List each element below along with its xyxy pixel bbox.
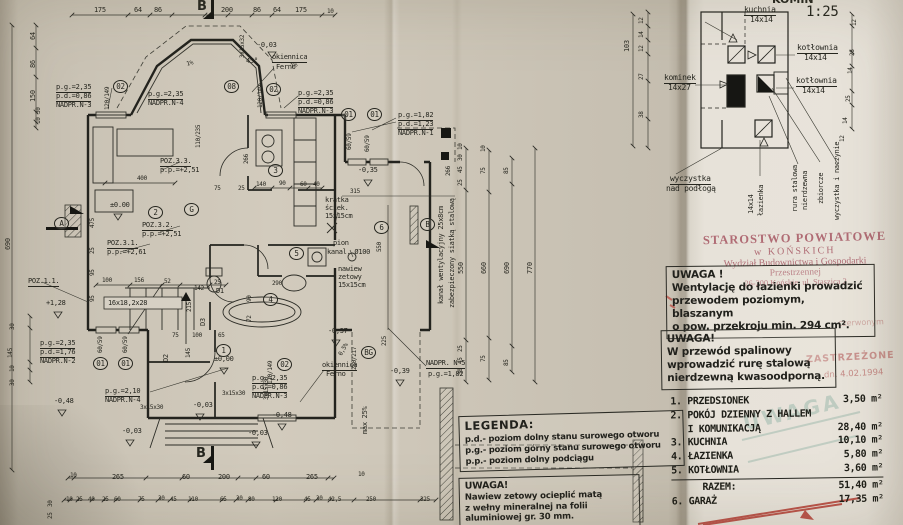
plan-annotation: 60 bbox=[262, 474, 270, 482]
plan-annotation: nierdzewna bbox=[802, 171, 810, 210]
plan-annotation: 85 bbox=[504, 359, 511, 366]
plan-annotation: p.p.=+2,51 bbox=[142, 231, 181, 239]
plan-annotation: 12 bbox=[639, 45, 646, 52]
plan-annotation: 40 bbox=[88, 497, 95, 504]
plan-annotation: 110/235 bbox=[196, 125, 203, 148]
plan-annotation: 80 bbox=[248, 497, 255, 504]
plan-annotation: D3 bbox=[200, 318, 208, 326]
plan-annotation: 60/59 bbox=[347, 133, 354, 150]
note-lines: W przewód spalinowywprowadzić rurę stalo… bbox=[667, 344, 830, 385]
plan-annotation: -0,03 bbox=[122, 428, 142, 436]
note-lines: Wentylację do łazienki prowadzićprzewode… bbox=[672, 280, 869, 334]
plan-annotation: 30 bbox=[48, 500, 55, 507]
plan-annotation: 85 bbox=[504, 167, 511, 174]
plan-annotation: 550 bbox=[458, 262, 466, 274]
scanned-floor-plan-sheet: KOMIN1:25kuchnia14x14kotłownia14x14komin… bbox=[0, 0, 903, 525]
plan-annotation: 156 bbox=[134, 278, 144, 285]
plan-ref-circle: B bbox=[420, 218, 435, 231]
plan-annotation: wyczystka i naczynie bbox=[834, 142, 842, 220]
plan-annotation: 25 bbox=[458, 345, 465, 352]
plan-annotation: 60/59 bbox=[123, 336, 130, 353]
plan-annotation: 75 bbox=[481, 355, 488, 362]
plan-annotation: p.p.=+2,61 bbox=[107, 249, 146, 257]
plan-annotation: 72 bbox=[247, 315, 254, 322]
plan-annotation: 266 bbox=[244, 154, 251, 164]
plan-annotation: pion bbox=[333, 240, 349, 248]
plan-annotation: D1 bbox=[216, 288, 224, 296]
plan-annotation: 142 bbox=[194, 286, 204, 293]
plan-annotation: 25 bbox=[214, 280, 221, 287]
plan-annotation: 30 bbox=[458, 154, 465, 161]
plan-annotation: 45° bbox=[246, 58, 258, 66]
note-insulation: UWAGA! Nawiew zetowy ocieplić matąz wełn… bbox=[458, 474, 640, 525]
room-area: 3,60 m² bbox=[844, 462, 884, 476]
plan-annotation: 30 bbox=[236, 496, 243, 503]
plan-annotation: -0,03 bbox=[257, 42, 277, 50]
plan-ref-circle: 3 bbox=[268, 164, 283, 177]
plan-annotation: 15x15cm bbox=[338, 282, 365, 290]
text-line: przewodem poziomym, blaszanym bbox=[672, 293, 868, 321]
room-name: 3. KUCHNIA bbox=[671, 436, 727, 451]
plan-annotation: 14 bbox=[843, 117, 850, 124]
plan-annotation: 200 bbox=[221, 7, 233, 15]
plan-annotation: Ferno bbox=[326, 371, 346, 379]
plan-annotation: 3x15x32 bbox=[240, 35, 247, 58]
plan-annotation: 90 bbox=[279, 181, 286, 188]
plan-annotation: 10 bbox=[66, 497, 73, 504]
room-area: 5,80 m² bbox=[844, 448, 884, 462]
room-area: 28,40 m² bbox=[838, 420, 883, 434]
plan-annotation: 290 bbox=[272, 281, 282, 288]
room-schedule: 1. PRZEDSIONEK3,50 m²2. POKÓJ DZIENNY Z … bbox=[670, 393, 884, 509]
plan-annotation: 60 bbox=[114, 497, 121, 504]
plan-annotation: -0,03 bbox=[193, 402, 213, 410]
plan-annotation: 145 bbox=[186, 348, 193, 358]
plan-annotation: 14x14 bbox=[750, 16, 773, 25]
plan-annotation: -0,39 bbox=[390, 368, 410, 376]
plan-annotation: 30 bbox=[10, 379, 17, 386]
plan-annotation: 475 bbox=[90, 218, 97, 228]
plan-annotation: 10 bbox=[481, 145, 488, 152]
plan-annotation: 15x15cm bbox=[325, 213, 352, 221]
plan-annotation: 10 bbox=[327, 9, 334, 16]
plan-annotation: 25 bbox=[102, 497, 109, 504]
plan-annotation: 14x14 bbox=[748, 194, 756, 214]
plan-annotation: 64 bbox=[273, 7, 281, 15]
plan-annotation: 150 bbox=[30, 90, 38, 102]
plan-annotation: 12 bbox=[840, 135, 847, 142]
plan-annotation: 60 bbox=[182, 474, 190, 482]
plan-annotation: 3x15x30 bbox=[140, 405, 163, 412]
plan-annotation: 200 bbox=[218, 474, 230, 482]
plan-annotation: p.p.=+2,51 bbox=[160, 167, 199, 175]
plan-annotation: 550 bbox=[377, 242, 384, 252]
plan-annotation: ±0,00 bbox=[214, 356, 234, 364]
plan-annotation: 25 bbox=[458, 179, 465, 186]
plan-annotation: 75 bbox=[138, 497, 145, 504]
total-area: 51,40 m² bbox=[838, 478, 883, 492]
room-schedule-rows: 1. PRZEDSIONEK3,50 m²2. POKÓJ DZIENNY Z … bbox=[670, 393, 883, 479]
plan-annotation: łazienka bbox=[758, 185, 766, 216]
plan-annotation: 10 bbox=[70, 473, 77, 480]
plan-annotation: 690 bbox=[504, 262, 512, 274]
plan-annotation: zbiorcze bbox=[818, 173, 826, 204]
plan-annotation: 315 bbox=[350, 189, 360, 196]
plan-ref-circle: 01 bbox=[93, 357, 108, 370]
room-name: 1. PRZEDSIONEK bbox=[670, 394, 749, 409]
plan-annotation: 40 bbox=[313, 182, 320, 189]
schedule-row: 5. KOTŁOWNIA3,60 m² bbox=[671, 462, 883, 479]
plan-annotation: rura stalowa bbox=[792, 165, 800, 212]
plan-ref-circle: BG bbox=[361, 346, 376, 359]
room-name: I KOMUNIKACJĄ bbox=[671, 422, 761, 437]
plan-annotation: NADPR.N-4 bbox=[148, 100, 183, 108]
plan-annotation: 65 bbox=[220, 497, 227, 504]
plan-annotation: 690 bbox=[5, 238, 13, 250]
plan-annotation: 100 bbox=[102, 278, 112, 285]
plan-annotation: 250 bbox=[366, 497, 376, 504]
text-line: aluminiowej gr. 30 mm. bbox=[465, 511, 633, 525]
plan-annotation: 266 bbox=[446, 166, 453, 176]
plan-annotation: 60 bbox=[300, 182, 307, 189]
plan-annotation: 38 bbox=[639, 111, 646, 118]
plan-annotation: 770 bbox=[527, 262, 535, 274]
plan-annotation: 30 bbox=[158, 496, 165, 503]
plan-annotation: +1,28 bbox=[46, 300, 66, 308]
plan-annotation: 100 bbox=[192, 333, 202, 340]
room-area: 3,50 m² bbox=[843, 393, 883, 407]
plan-ref-circle: 4 bbox=[263, 293, 278, 306]
plan-annotation: 10 bbox=[458, 143, 465, 150]
plan-annotation: 65 bbox=[218, 333, 225, 340]
plan-annotation: 30 bbox=[316, 496, 323, 503]
plan-annotation: 140 bbox=[256, 182, 266, 189]
plan-annotation: B bbox=[197, 0, 207, 14]
plan-annotation: kanał wentylacyjny 25x8cm bbox=[438, 206, 446, 304]
plan-annotation: 30 bbox=[36, 107, 43, 114]
plan-ref-circle: 02 bbox=[266, 83, 281, 96]
plan-annotation: 103 bbox=[624, 40, 632, 52]
plan-annotation: 95 bbox=[90, 269, 97, 276]
plan-annotation: -0,03 bbox=[248, 430, 268, 438]
plan-ref-circle: 01 bbox=[118, 357, 133, 370]
text-line: nierdzewną kwasoodporną. bbox=[667, 370, 829, 385]
room-area: 10,10 m² bbox=[838, 434, 883, 448]
plan-annotation: 265 bbox=[112, 474, 124, 482]
plan-annotation: 12 bbox=[639, 17, 646, 24]
plan-annotation: 400 bbox=[137, 176, 147, 183]
plan-annotation: NADPR.N-2 bbox=[40, 358, 75, 366]
plan-annotation: NADPR.N-4 bbox=[105, 397, 140, 405]
plan-ref-circle: 5 bbox=[289, 247, 304, 260]
plan-annotation: 45 bbox=[304, 497, 311, 504]
plan-annotation: 14x14 bbox=[804, 54, 827, 63]
plan-annotation: NADPR.N-3 bbox=[298, 108, 333, 116]
total-label: RAZEM: bbox=[671, 480, 736, 495]
plan-annotation: 75 bbox=[214, 186, 221, 193]
plan-annotation: 25 bbox=[76, 497, 83, 504]
plan-annotation: B bbox=[196, 447, 206, 461]
plan-annotation: 60/59 bbox=[365, 135, 372, 152]
plan-annotation: NADPR.N-3 bbox=[56, 102, 91, 110]
plan-annotation: 110 bbox=[188, 497, 198, 504]
plan-annotation: 25 bbox=[48, 512, 55, 519]
plan-annotation: 12 bbox=[852, 19, 859, 26]
plan-ref-circle: 08 bbox=[224, 80, 239, 93]
note-lines: Nawiew zetowy ocieplić matąz wełny miner… bbox=[465, 489, 634, 525]
plan-annotation: 215 bbox=[187, 302, 194, 312]
plan-annotation: 75 bbox=[481, 167, 488, 174]
plan-annotation: 86 bbox=[253, 7, 261, 15]
plan-annotation: 175 bbox=[295, 7, 307, 15]
plan-annotation: 16x18,2x28 bbox=[108, 300, 147, 308]
plan-annotation: ±0.00 bbox=[110, 202, 130, 210]
plan-annotation: 3x15x30 bbox=[222, 391, 245, 398]
plan-annotation: NADPR. N-5 bbox=[426, 360, 465, 369]
plan-ref-circle: A bbox=[54, 217, 69, 230]
plan-annotation: -0,35 bbox=[358, 167, 378, 175]
plan-annotation: POZ.1.1. bbox=[28, 278, 59, 287]
plan-annotation: 42,5 bbox=[328, 497, 341, 504]
room-name: 4. ŁAZIENKA bbox=[671, 450, 733, 465]
plan-annotation: 25 bbox=[90, 247, 97, 254]
plan-annotation: 60/59 bbox=[98, 336, 105, 353]
plan-annotation: 27 bbox=[639, 73, 646, 80]
plan-ref-circle: 02 bbox=[277, 358, 292, 371]
plan-annotation: 86 bbox=[154, 7, 162, 15]
legend: LEGENDA: p.d.- poziom dolny stanu surowe… bbox=[458, 410, 684, 472]
plan-annotation: 75 bbox=[172, 333, 179, 340]
plan-annotation: 26 bbox=[850, 49, 857, 56]
plan-annotation: okiennica bbox=[272, 54, 307, 63]
plan-annotation: 660 bbox=[481, 262, 489, 274]
plan-annotation: 14 bbox=[848, 67, 855, 74]
plan-annotation: 14 bbox=[639, 31, 646, 38]
plan-annotation: 225 bbox=[382, 336, 389, 346]
garage-label: 6. GARAŻ bbox=[672, 494, 717, 508]
legend-items: p.d.- poziom dolny stanu surowego otworu… bbox=[465, 428, 678, 467]
plan-annotation: 45 bbox=[458, 166, 465, 173]
plan-annotation: 10 bbox=[36, 117, 43, 124]
plan-annotation: 14x14 bbox=[802, 87, 825, 96]
plan-annotation: 325 bbox=[420, 497, 430, 504]
plan-ref-circle: 2 bbox=[148, 206, 163, 219]
plan-annotation: 120/149 bbox=[105, 87, 112, 110]
plan-annotation: zabezpieczony siatką stalową bbox=[449, 198, 457, 308]
plan-annotation: 10 bbox=[10, 365, 17, 372]
plan-annotation: 52 bbox=[164, 279, 171, 286]
plan-ref-circle: 02 bbox=[113, 80, 128, 93]
plan-annotation: 25 bbox=[238, 186, 245, 193]
plan-annotation: 90 bbox=[247, 295, 254, 302]
garage-area: 17,35 m² bbox=[839, 492, 884, 506]
plan-annotation: NADPR.N-1 bbox=[398, 130, 433, 138]
plan-annotation: -0,48 bbox=[272, 412, 292, 420]
plan-annotation: 14x27 bbox=[668, 84, 691, 93]
plan-annotation: 95 bbox=[90, 295, 97, 302]
plan-annotation: nad podłogą bbox=[666, 185, 716, 194]
plan-annotation: D2 bbox=[163, 354, 171, 362]
plan-annotation: 265 bbox=[306, 474, 318, 482]
plan-ref-circle: G bbox=[184, 203, 199, 216]
plan-annotation: 25 bbox=[846, 95, 853, 102]
plan-ref-circle: 6 bbox=[374, 221, 389, 234]
plan-annotation: 1:25 bbox=[806, 5, 839, 20]
plan-annotation: 86 bbox=[30, 60, 38, 68]
plan-ref-circle: 01 bbox=[341, 108, 356, 121]
note-flue: UWAGA! W przewód spalinowywprowadzić rur… bbox=[661, 328, 837, 390]
plan-annotation: 45 bbox=[170, 497, 177, 504]
plan-annotation: -0,37 bbox=[328, 328, 348, 336]
plan-ref-circle: 01 bbox=[367, 108, 382, 121]
plan-annotation: max 25% bbox=[362, 407, 370, 434]
plan-annotation: 145 bbox=[8, 348, 15, 358]
plan-annotation: 64 bbox=[30, 32, 38, 40]
plan-annotation: -0,48 bbox=[54, 398, 74, 406]
note-ventilation: UWAGA ! Wentylację do łazienki prowadzić… bbox=[666, 264, 876, 339]
plan-annotation: 175 bbox=[94, 7, 106, 15]
plan-annotation: kanal. Ø100 bbox=[327, 249, 370, 257]
text-line: Wentylację do łazienki prowadzić bbox=[672, 280, 868, 295]
chimney-detail bbox=[701, 12, 788, 148]
plan-annotation: 120 bbox=[272, 497, 282, 504]
plan-annotation: 10 bbox=[358, 472, 365, 479]
plan-annotation: 3x15x30 bbox=[264, 377, 271, 400]
plan-annotation: p.g.=1,82 bbox=[428, 371, 463, 379]
schedule-extra-row: 6. GARAŻ 17,35 m² bbox=[672, 492, 884, 509]
plan-annotation: 64 bbox=[134, 7, 142, 15]
plan-annotation: 30 bbox=[10, 323, 17, 330]
plan-annotation: 120/149 bbox=[258, 85, 265, 108]
room-name: 5. KOTŁOWNIA bbox=[671, 464, 739, 479]
room-name: 2. POKÓJ DZIENNY Z HALLEM bbox=[670, 407, 811, 423]
